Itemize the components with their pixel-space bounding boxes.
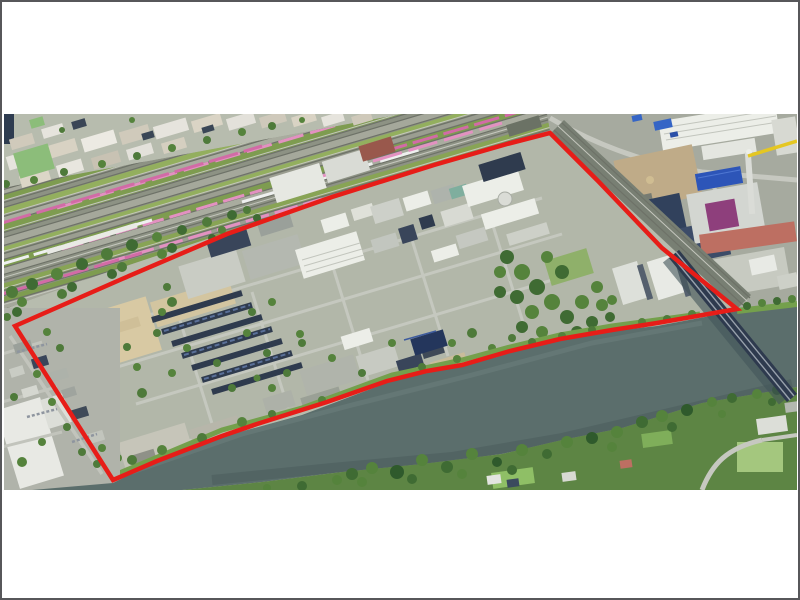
scene-shape bbox=[467, 328, 477, 338]
scene-shape bbox=[636, 416, 648, 428]
scene-shape bbox=[718, 410, 726, 418]
scene-shape bbox=[510, 290, 524, 304]
scene-shape bbox=[2, 180, 10, 188]
scene-shape bbox=[51, 268, 63, 280]
scene-shape bbox=[263, 349, 271, 357]
dome-tank bbox=[498, 192, 512, 206]
scene-shape bbox=[620, 459, 633, 469]
scene-shape bbox=[514, 264, 530, 280]
scene-shape bbox=[26, 278, 38, 290]
scene-shape bbox=[507, 465, 517, 475]
scene-shape bbox=[167, 243, 177, 253]
scene-shape bbox=[448, 339, 456, 347]
scene-shape bbox=[596, 299, 608, 311]
scene-shape bbox=[177, 225, 187, 235]
scene-shape bbox=[611, 426, 623, 438]
scene-shape bbox=[127, 455, 137, 465]
scene-shape bbox=[117, 262, 127, 272]
scene-shape bbox=[63, 423, 71, 431]
scene-shape bbox=[153, 329, 161, 337]
scene-shape bbox=[541, 251, 553, 263]
scene-shape bbox=[605, 312, 615, 322]
scene-shape bbox=[560, 310, 574, 324]
scene-shape bbox=[107, 269, 117, 279]
scene-shape bbox=[17, 457, 27, 467]
scene-shape bbox=[283, 369, 291, 377]
scene-shape bbox=[133, 363, 141, 371]
scene-shape bbox=[243, 329, 251, 337]
scene-shape bbox=[67, 282, 77, 292]
scene-shape bbox=[243, 206, 251, 214]
scene-shape bbox=[137, 388, 147, 398]
scene-shape bbox=[607, 442, 617, 452]
scene-shape bbox=[332, 475, 342, 485]
scene-shape bbox=[788, 295, 796, 303]
purple-building bbox=[705, 199, 739, 232]
scene-shape bbox=[296, 330, 304, 338]
scene-shape bbox=[57, 289, 67, 299]
scene-shape bbox=[607, 295, 617, 305]
scene-shape bbox=[133, 152, 141, 160]
scene-shape bbox=[525, 305, 539, 319]
scene-shape bbox=[407, 474, 417, 484]
scene-shape bbox=[48, 398, 56, 406]
scene-shape bbox=[346, 468, 358, 480]
scene-shape bbox=[213, 359, 221, 367]
scene-shape bbox=[357, 477, 367, 487]
scene-shape bbox=[416, 454, 428, 466]
scene-shape bbox=[544, 294, 560, 310]
scene-shape bbox=[390, 465, 404, 479]
scene-shape bbox=[297, 481, 307, 491]
scene-shape bbox=[366, 462, 378, 474]
scene-shape bbox=[516, 444, 528, 456]
scene-shape bbox=[38, 438, 46, 446]
scene-shape bbox=[237, 417, 247, 427]
scene-shape bbox=[707, 397, 717, 407]
scene-shape bbox=[752, 389, 762, 399]
scene-shape bbox=[10, 393, 18, 401]
photo-content bbox=[2, 13, 800, 492]
scene-shape bbox=[203, 136, 211, 144]
scene-shape bbox=[586, 432, 598, 444]
scene-shape bbox=[656, 410, 668, 422]
scene-shape bbox=[646, 176, 654, 184]
scene-shape bbox=[123, 343, 131, 351]
scene-shape bbox=[542, 449, 552, 459]
scene-shape bbox=[78, 448, 86, 456]
scene-shape bbox=[228, 384, 236, 392]
scene-shape bbox=[507, 478, 520, 488]
aerial-photo-svg bbox=[2, 2, 800, 600]
scene-shape bbox=[457, 469, 467, 479]
scene-shape bbox=[17, 297, 27, 307]
scene-shape bbox=[743, 302, 751, 310]
scene-shape bbox=[12, 307, 22, 317]
scene-shape bbox=[555, 265, 569, 279]
scene-shape bbox=[157, 445, 167, 455]
scene-shape bbox=[494, 266, 506, 278]
scene-shape bbox=[388, 339, 396, 347]
scene-shape bbox=[168, 144, 176, 152]
scene-shape bbox=[76, 258, 88, 270]
scene-shape bbox=[516, 321, 528, 333]
scene-shape bbox=[268, 298, 276, 306]
scene-shape bbox=[727, 393, 737, 403]
scene-shape bbox=[508, 334, 516, 342]
scene-shape bbox=[183, 344, 191, 352]
scene-shape bbox=[248, 308, 256, 316]
scene-shape bbox=[773, 297, 781, 305]
scene-shape bbox=[158, 308, 166, 316]
scene-shape bbox=[168, 369, 176, 377]
scene-shape bbox=[328, 354, 336, 362]
scene-shape bbox=[56, 344, 64, 352]
scene-shape bbox=[466, 448, 478, 460]
scene-shape bbox=[268, 122, 276, 130]
scene-shape bbox=[529, 279, 545, 295]
scene-shape bbox=[30, 176, 38, 184]
scene-shape bbox=[299, 117, 305, 123]
scene-shape bbox=[6, 286, 18, 298]
scene-shape bbox=[163, 283, 171, 291]
scene-shape bbox=[3, 313, 11, 321]
scene-shape bbox=[575, 295, 589, 309]
scene-shape bbox=[667, 422, 677, 432]
scene-shape bbox=[784, 401, 799, 413]
scene-shape bbox=[561, 436, 573, 448]
scene-shape bbox=[268, 384, 276, 392]
scene-shape bbox=[202, 217, 212, 227]
scene-shape bbox=[591, 281, 603, 293]
screenshot-frame bbox=[0, 0, 800, 600]
scene-shape bbox=[494, 286, 506, 298]
scene-shape bbox=[492, 457, 502, 467]
scene-shape bbox=[43, 328, 51, 336]
scene-shape bbox=[453, 355, 461, 363]
scene-shape bbox=[441, 461, 453, 473]
scene-shape bbox=[98, 444, 106, 452]
scene-shape bbox=[126, 239, 138, 251]
scene-shape bbox=[167, 297, 177, 307]
scene-shape bbox=[254, 375, 261, 382]
scene-shape bbox=[98, 160, 106, 168]
scene-shape bbox=[152, 232, 162, 242]
scene-shape bbox=[59, 127, 65, 133]
scene-shape bbox=[157, 249, 167, 259]
scene-shape bbox=[263, 484, 271, 492]
scene-shape bbox=[358, 369, 366, 377]
scene-shape bbox=[101, 248, 113, 260]
scene-shape bbox=[238, 128, 246, 136]
scene-shape bbox=[758, 299, 766, 307]
aerial-photo bbox=[2, 2, 800, 600]
scene-shape bbox=[129, 117, 135, 123]
scene-shape bbox=[227, 210, 237, 220]
scene-shape bbox=[60, 168, 68, 176]
scene-shape bbox=[681, 404, 693, 416]
scene-shape bbox=[500, 250, 514, 264]
scene-shape bbox=[298, 339, 306, 347]
scene-shape bbox=[33, 370, 41, 378]
